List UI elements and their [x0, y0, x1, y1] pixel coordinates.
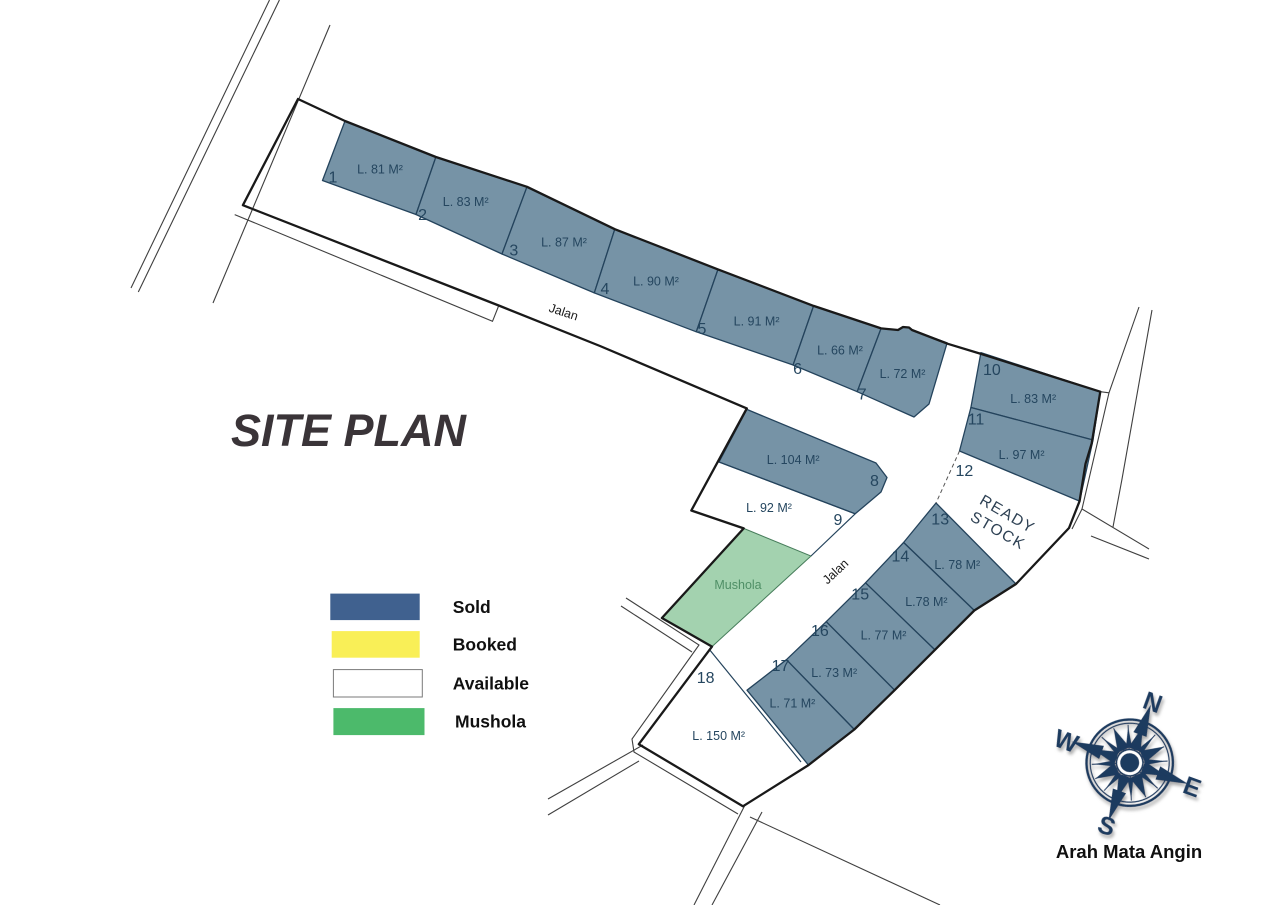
- svg-text:8: 8: [870, 473, 879, 490]
- svg-text:L. 83 M²: L. 83 M²: [1010, 392, 1056, 406]
- svg-text:L. 90 M²: L. 90 M²: [633, 275, 679, 289]
- svg-text:L. 73 M²: L. 73 M²: [811, 666, 857, 680]
- svg-text:L. 66 M²: L. 66 M²: [817, 344, 863, 358]
- svg-text:2: 2: [418, 207, 427, 224]
- svg-text:L. 72 M²: L. 72 M²: [880, 367, 926, 381]
- svg-text:14: 14: [892, 548, 910, 565]
- svg-text:L. 150 M²: L. 150 M²: [692, 729, 745, 743]
- svg-text:Available: Available: [453, 674, 529, 694]
- svg-text:13: 13: [931, 512, 949, 529]
- svg-text:5: 5: [698, 321, 707, 338]
- svg-text:Sold: Sold: [453, 597, 491, 617]
- svg-text:15: 15: [851, 587, 869, 604]
- svg-text:Arah Mata Angin: Arah Mata Angin: [1056, 841, 1202, 862]
- svg-text:3: 3: [509, 243, 518, 260]
- svg-text:9: 9: [834, 512, 843, 529]
- svg-text:6: 6: [793, 361, 802, 378]
- svg-text:L. 97 M²: L. 97 M²: [999, 448, 1045, 462]
- svg-text:L. 78 M²: L. 78 M²: [934, 558, 980, 572]
- svg-text:18: 18: [697, 670, 715, 687]
- svg-text:11: 11: [968, 412, 985, 429]
- svg-text:L. 81 M²: L. 81 M²: [357, 163, 403, 177]
- svg-text:12: 12: [956, 463, 974, 480]
- svg-text:10: 10: [983, 362, 1001, 379]
- svg-text:L. 87 M²: L. 87 M²: [541, 236, 587, 250]
- svg-text:L. 92 M²: L. 92 M²: [746, 501, 792, 515]
- svg-text:L. 83 M²: L. 83 M²: [443, 195, 489, 209]
- svg-text:L.78 M²: L.78 M²: [905, 595, 947, 609]
- svg-text:17: 17: [772, 658, 790, 675]
- svg-text:L. 104 M²: L. 104 M²: [767, 453, 820, 467]
- svg-text:L. 71 M²: L. 71 M²: [769, 697, 815, 711]
- svg-text:4: 4: [601, 281, 610, 298]
- svg-text:16: 16: [811, 623, 829, 640]
- svg-text:7: 7: [858, 387, 867, 404]
- svg-text:Booked: Booked: [453, 635, 517, 655]
- svg-text:1: 1: [329, 170, 338, 187]
- svg-text:L. 91 M²: L. 91 M²: [734, 315, 780, 329]
- svg-text:Mushola: Mushola: [455, 712, 526, 732]
- svg-text:SITE PLAN: SITE PLAN: [231, 405, 468, 456]
- svg-text:L. 77 M²: L. 77 M²: [861, 629, 907, 643]
- svg-text:Mushola: Mushola: [714, 578, 761, 592]
